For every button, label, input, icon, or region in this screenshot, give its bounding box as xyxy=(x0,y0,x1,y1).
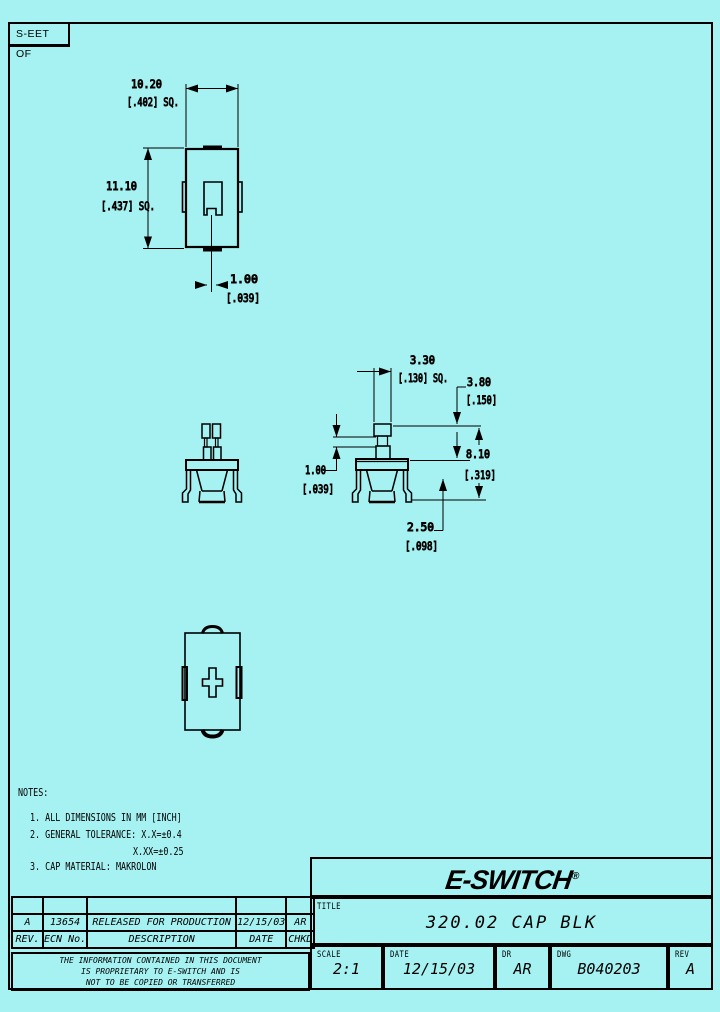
registered-mark: ® xyxy=(571,871,579,882)
empty-cell xyxy=(43,897,87,914)
note-tolerance-2: X.XX=±0.25 xyxy=(133,846,184,858)
date-header: DATE xyxy=(236,931,286,948)
scale-label: SCALE xyxy=(317,950,341,960)
drawn-by-cell: DR AR xyxy=(495,945,550,990)
note-material: 3. CAP MATERIAL: MAKROLON xyxy=(30,861,156,873)
drawing-title: 320.02 CAP BLK xyxy=(312,913,711,933)
dim-overall-mm: 8.10 xyxy=(466,447,490,461)
empty-cell xyxy=(236,897,286,914)
rev-label: REV xyxy=(675,950,689,960)
proprietary-line-2: IS PROPRIETARY TO E-SWITCH AND IS xyxy=(13,966,308,977)
dim-stem-h-in: [.150] xyxy=(466,393,497,407)
dwg-number-cell: DWG B040203 xyxy=(550,945,668,990)
dim-skirt-in: [.098] xyxy=(405,539,438,553)
dwg-value: B040203 xyxy=(552,960,666,978)
top-view-dimensions: 10.20 [.402] SQ. 11.10 [.437] SQ. 1.00 [… xyxy=(101,77,260,305)
drawing-sheet: { "page": { "sheet_label": "S-EET OF" },… xyxy=(0,0,720,1012)
dim-neck-in: [.039] xyxy=(302,482,334,496)
dim-skirt-mm: 2.50 xyxy=(407,520,434,534)
revision-table: A 13654 RELEASED FOR PRODUCTION 12/15/03… xyxy=(11,896,315,949)
revision-empty-row xyxy=(12,897,314,914)
empty-cell xyxy=(87,897,236,914)
desc-value: RELEASED FOR PRODUCTION xyxy=(87,914,236,931)
dim-notch-in: [.039] xyxy=(226,291,260,305)
side-view-dimensions: 1.00 [.039] 3.30 [.130] SQ. 3.80 [.150] … xyxy=(302,353,497,553)
dim-neck-mm: 1.00 xyxy=(305,463,326,477)
dim-stem-sq-mm: 3.30 xyxy=(410,353,435,367)
date-label: DATE xyxy=(390,950,409,960)
dim-top-height-mm: 11.10 xyxy=(106,179,137,193)
title-label: TITLE xyxy=(317,902,341,912)
bottom-view xyxy=(183,627,242,737)
dim-top-width-in: [.402] SQ. xyxy=(127,95,179,109)
empty-cell xyxy=(12,897,43,914)
ecn-header: ECN No. xyxy=(43,931,87,948)
proprietary-line-1: THE INFORMATION CONTAINED IN THIS DOCUME… xyxy=(13,955,308,966)
notes-heading: NOTES: xyxy=(18,787,48,799)
rev-cell: REV A xyxy=(668,945,713,990)
scale-value: 2:1 xyxy=(312,960,381,978)
proprietary-line-3: NOT TO BE COPIED OR TRANSFERRED xyxy=(13,977,308,988)
dim-overall-in: [.319] xyxy=(464,468,496,482)
proprietary-note: THE INFORMATION CONTAINED IN THIS DOCUME… xyxy=(11,952,310,991)
title-box: TITLE 320.02 CAP BLK xyxy=(310,897,713,945)
note-tolerance: 2. GENERAL TOLERANCE: X.X=±0.4 xyxy=(30,829,182,841)
note-dimensions: 1. ALL DIMENSIONS IN MM [INCH] xyxy=(30,812,182,824)
date-value: 12/15/03 xyxy=(385,960,493,978)
dim-stem-h-mm: 3.80 xyxy=(467,375,491,389)
dim-notch-mm: 1.00 xyxy=(230,272,258,286)
desc-header: DESCRIPTION xyxy=(87,931,236,948)
dim-top-height-in: [.437] SQ. xyxy=(101,199,155,213)
eswitch-logo: E-SWITCH® xyxy=(443,859,580,898)
scale-cell: SCALE 2:1 xyxy=(310,945,383,990)
dr-value: AR xyxy=(497,960,548,978)
rev-value: A xyxy=(670,960,711,978)
dwg-label: DWG xyxy=(557,950,571,960)
side-view xyxy=(353,424,412,502)
ecn-value: 13654 xyxy=(43,914,87,931)
revision-row: A 13654 RELEASED FOR PRODUCTION 12/15/03… xyxy=(12,914,314,931)
rev-value: A xyxy=(12,914,43,931)
dim-top-width-mm: 10.20 xyxy=(131,77,162,91)
dim-stem-sq-in: [.130] SQ. xyxy=(398,371,448,385)
top-view xyxy=(183,147,243,250)
logo-box: E-SWITCH® xyxy=(310,857,713,897)
revision-header-row: REV. ECN No. DESCRIPTION DATE CHKD xyxy=(12,931,314,948)
dr-label: DR xyxy=(502,950,512,960)
rev-header: REV. xyxy=(12,931,43,948)
front-view xyxy=(183,424,242,502)
date-value: 12/15/03 xyxy=(236,914,286,931)
date-cell: DATE 12/15/03 xyxy=(383,945,495,990)
